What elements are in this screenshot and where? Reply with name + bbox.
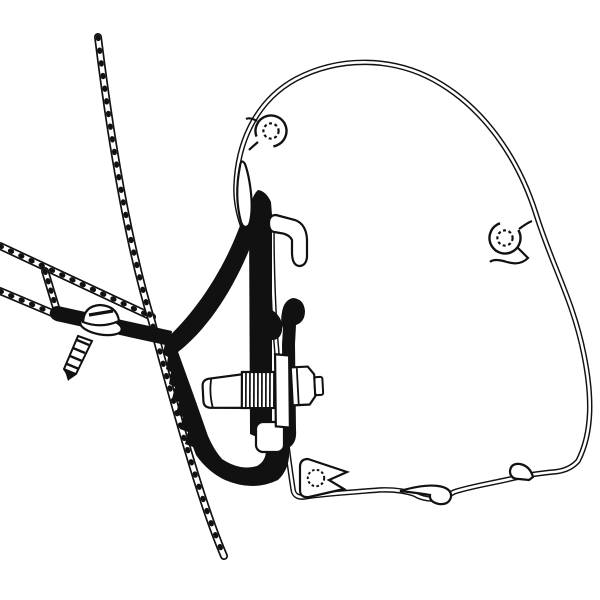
diagram-background	[0, 0, 600, 600]
bolt-washer-plate	[272, 354, 293, 429]
awning-adapter-diagram	[0, 0, 600, 600]
diagram-stage	[0, 0, 600, 600]
hex-nut	[291, 366, 316, 405]
bolt-tip	[314, 377, 323, 395]
